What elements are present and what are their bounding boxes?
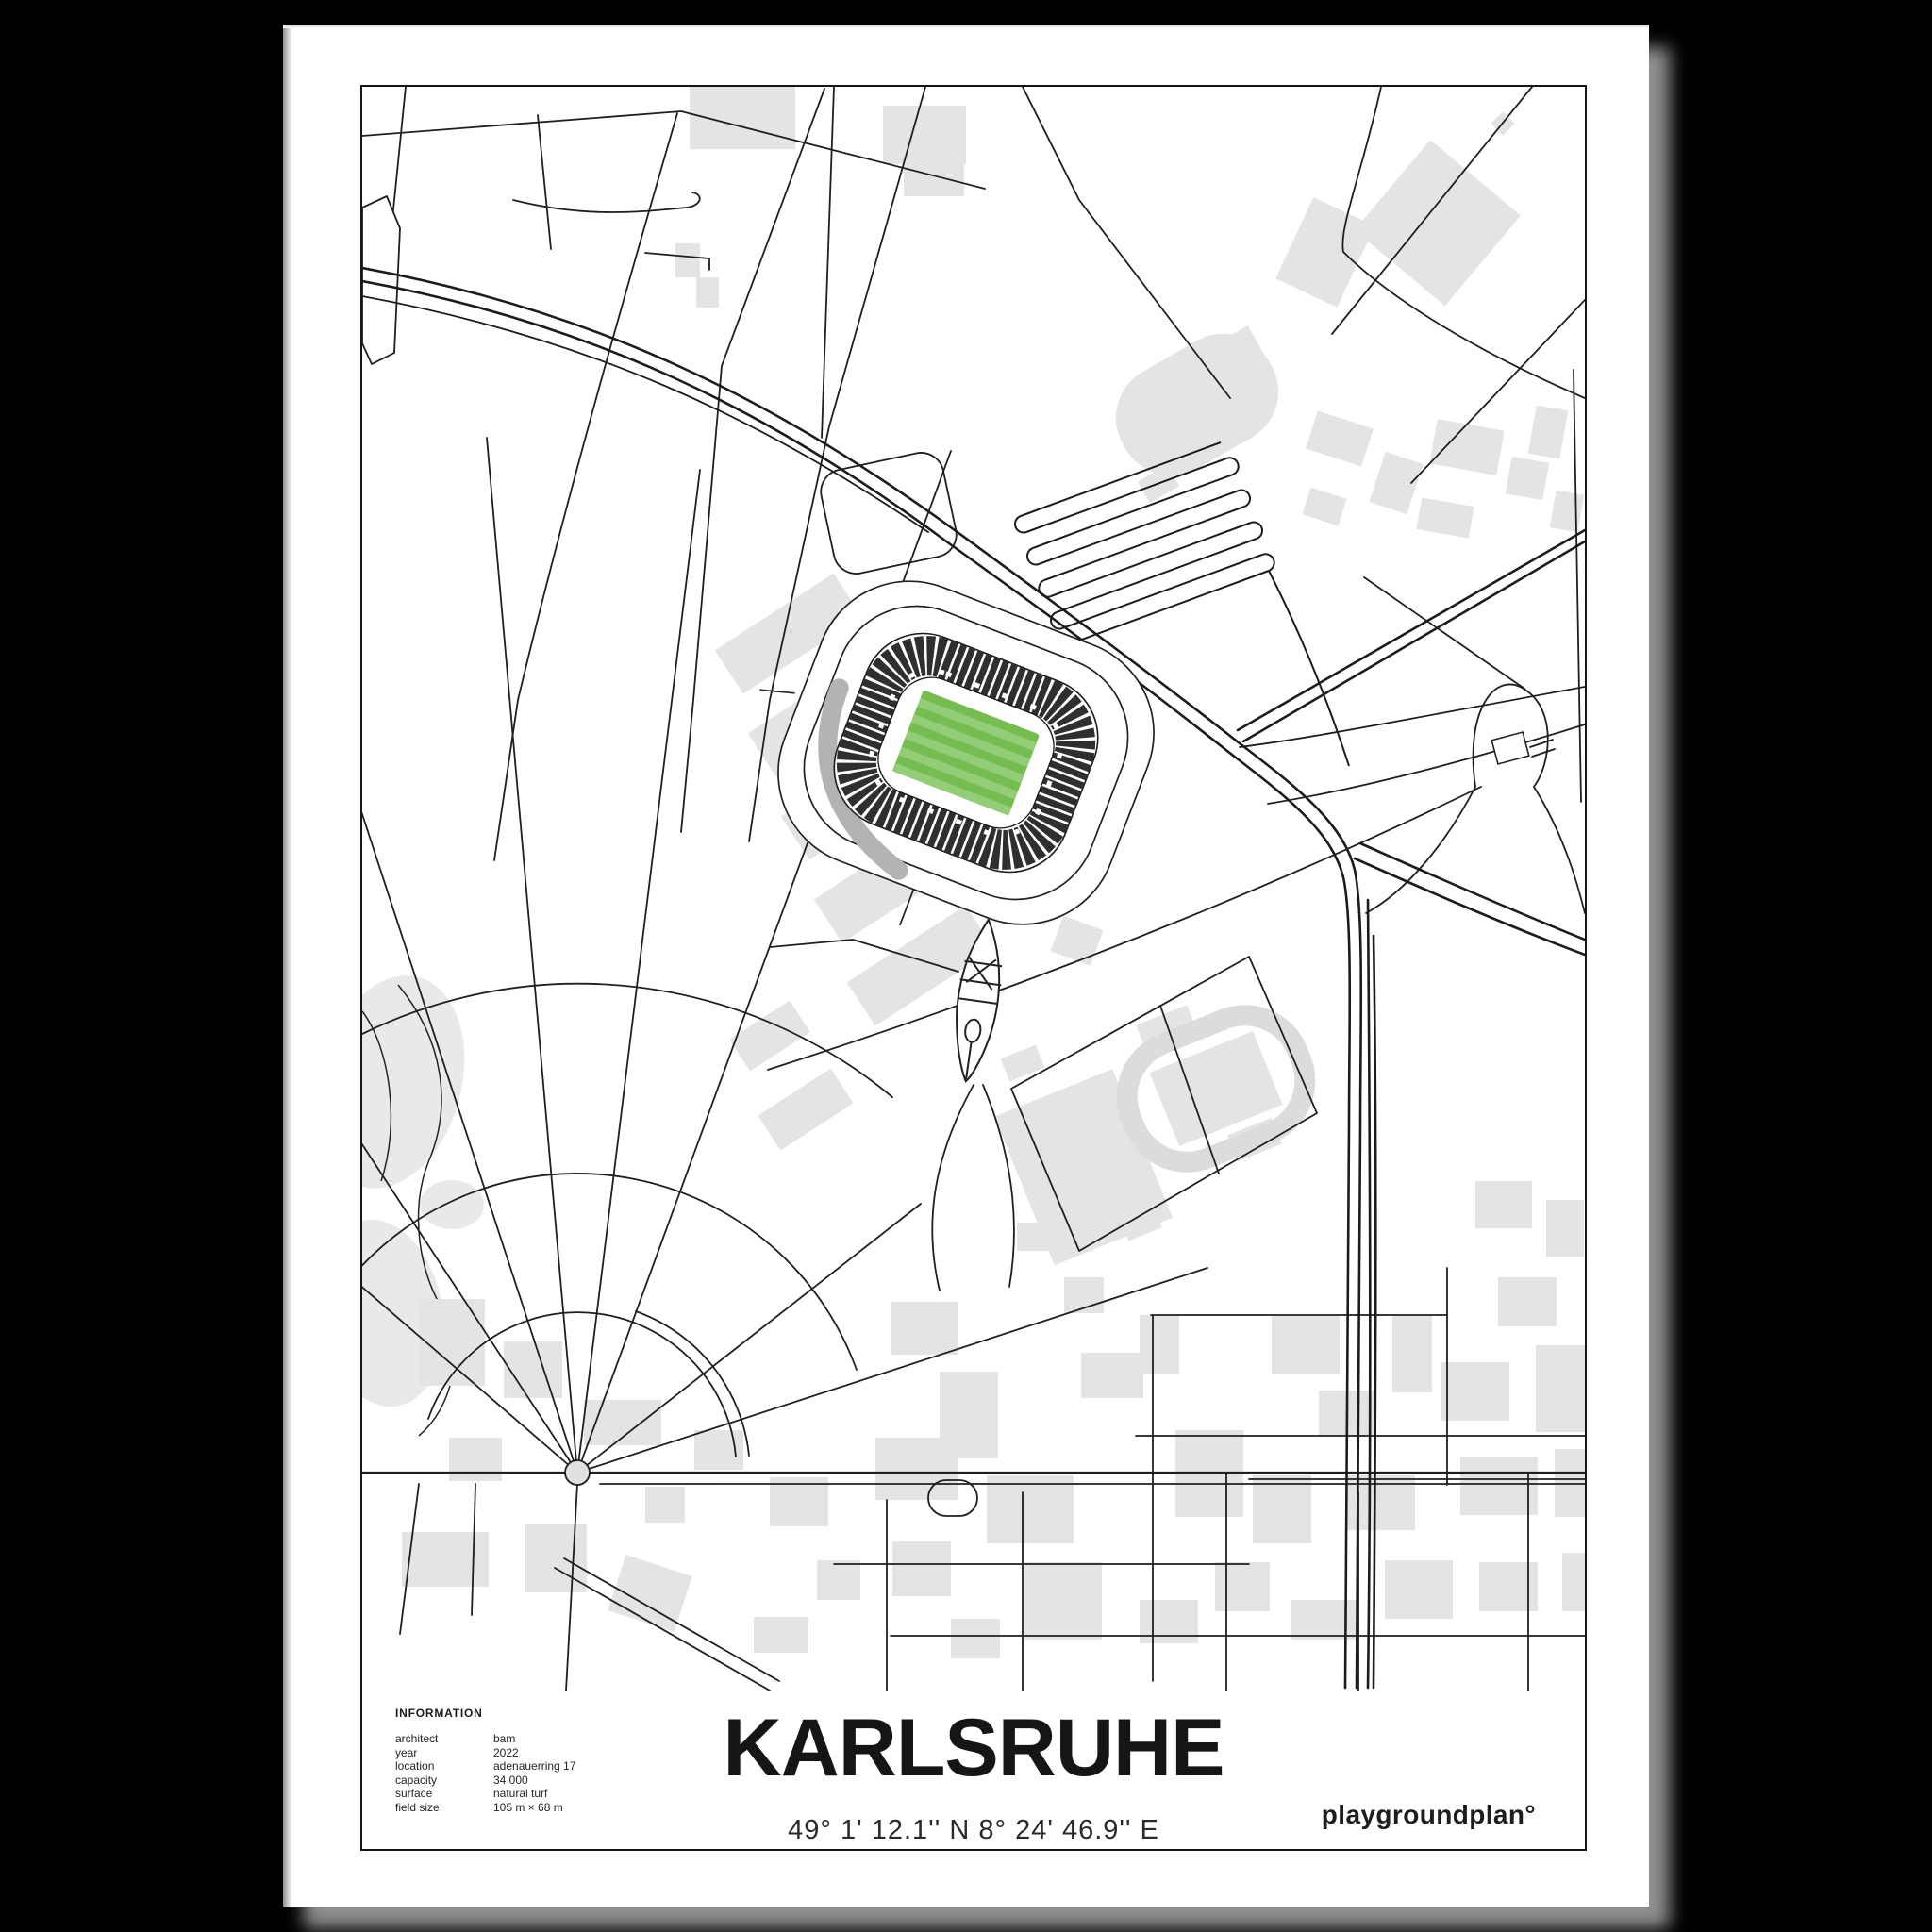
- map-border-frame: [360, 85, 1587, 1851]
- city-map-drawing: [362, 87, 1585, 1849]
- poster-edge-highlight: [283, 25, 292, 1907]
- brand-logo: playgroundplan°: [1322, 1800, 1536, 1830]
- info-label: field size: [395, 1801, 493, 1815]
- city-title: KARLSRUHE: [360, 1702, 1587, 1795]
- pond-building: [1491, 732, 1529, 764]
- info-value: 105 m × 68 m: [493, 1801, 575, 1815]
- poster-edge-top: [283, 25, 1649, 28]
- stadium-map-poster: INFORMATION architect bam year 2022 loca…: [283, 25, 1649, 1907]
- photo-background: INFORMATION architect bam year 2022 loca…: [0, 0, 1932, 1932]
- palace-circle-node: [565, 1460, 590, 1485]
